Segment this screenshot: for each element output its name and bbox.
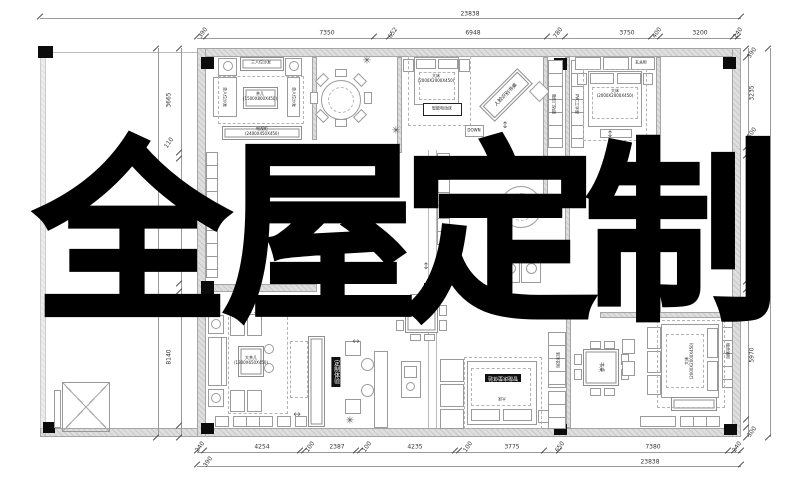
dimension-value: 3775: [504, 444, 519, 451]
chair: [574, 369, 582, 380]
dimension-value: 3665: [166, 92, 173, 107]
dimension-value: 2387: [329, 444, 344, 451]
bar-stool: [361, 384, 374, 397]
overlay-char-3: 定: [403, 137, 597, 331]
round-table-inner: [328, 87, 354, 113]
dimension-value: 3200: [692, 30, 707, 37]
sink-circle: [406, 382, 415, 391]
wardrobe-strip: [548, 391, 566, 429]
dimension-line: [40, 18, 741, 19]
furniture-label: 单人位沙发: [291, 87, 296, 107]
furniture-label: 智能电动床: [432, 107, 452, 112]
door-swing-arrow: ↔: [293, 410, 301, 420]
side-table-circle: [289, 61, 299, 71]
dimension-value: 23838: [460, 11, 479, 18]
plant-icon: ✳: [363, 56, 371, 67]
overlay-char-1: 全: [35, 137, 229, 331]
furniture-label: 大床 (2000X2000X450): [685, 343, 695, 380]
wall-connector-line: [46, 52, 197, 53]
floorplan-canvas: 2383839073506526948780375040032002402404…: [0, 0, 800, 500]
dimension-tick: [743, 434, 749, 440]
furniture-label: 大床 (2000X2000X450): [597, 89, 634, 99]
carpet-outline: [464, 357, 542, 429]
chair: [345, 399, 361, 414]
column: [201, 423, 214, 434]
column: [724, 424, 737, 435]
furniture-label: 单人位沙发: [222, 87, 227, 107]
elevator-shaft: [62, 382, 110, 432]
dimension-value: 4235: [407, 444, 422, 451]
dining-chair: [364, 92, 372, 104]
chair: [604, 388, 615, 396]
dining-chair: [310, 92, 318, 104]
cabinet: [215, 416, 229, 427]
furniture-label: 智能床垫体验: [485, 374, 521, 382]
plant-icon: ✳: [346, 416, 354, 427]
furniture-label: 三人位沙发: [251, 61, 271, 66]
column: [38, 46, 53, 58]
side-table-circle: [223, 61, 233, 71]
carpet-outline: [408, 56, 471, 126]
fridge: [440, 359, 464, 382]
overlay-char-4: 制: [585, 137, 779, 331]
long-table: [308, 336, 325, 427]
cabinet: [640, 416, 676, 427]
bar-stool: [361, 358, 374, 371]
dimension-value: 6948: [465, 30, 480, 37]
small-table: [622, 361, 635, 376]
dimension-tick: [765, 434, 771, 440]
furniture-label: 书桌: [598, 362, 604, 372]
cabinet: [277, 416, 291, 427]
dimension-line: [197, 452, 741, 453]
dimension-line: [197, 38, 741, 39]
dimension-tick: [738, 13, 744, 19]
cabinet-row: [680, 416, 720, 427]
dimension-value: 7350: [319, 30, 334, 37]
chair: [574, 354, 582, 365]
furniture-label: PVC工字型: [574, 94, 579, 114]
furniture-label: 大床 (2000X2000X450): [418, 74, 455, 84]
dimension-tick: [738, 461, 744, 467]
wall-bottom: [40, 428, 741, 437]
dimension-value: 5970: [749, 347, 756, 362]
armchair-circle: [211, 393, 221, 403]
furniture-label: 隐形门轨道: [551, 94, 556, 114]
chair: [590, 388, 601, 396]
fridge: [440, 384, 464, 407]
projection-screen-outline: [290, 341, 308, 398]
furniture-label: 到顶衣柜: [555, 352, 560, 368]
column: [723, 57, 736, 69]
dimension-value: 4254: [254, 444, 269, 451]
furniture-label: 玄关柜: [635, 61, 647, 66]
dimension-value: 3235: [749, 85, 756, 100]
dimension-line: [197, 466, 741, 467]
furniture-label: 大茶几 (1300X650X450): [234, 356, 268, 366]
overlay-char-2: 屋: [223, 137, 417, 331]
dining-chair: [335, 69, 347, 77]
dimension-value: 8140: [166, 349, 173, 364]
furniture-label: 茶几 (1500X800X450): [243, 92, 277, 102]
dimension-value: 23838: [640, 459, 659, 466]
furniture-label: 定制体验: [331, 357, 340, 387]
cabinet-row: [233, 416, 273, 427]
fridge: [440, 409, 464, 429]
oven-inner: [404, 366, 417, 378]
column: [201, 57, 214, 69]
furniture-label: 大床: [498, 396, 506, 401]
dimension-value: 3750: [619, 30, 634, 37]
elevator-door: [54, 390, 61, 428]
dimension-value: 7380: [645, 444, 660, 451]
bar-counter: [374, 351, 388, 428]
